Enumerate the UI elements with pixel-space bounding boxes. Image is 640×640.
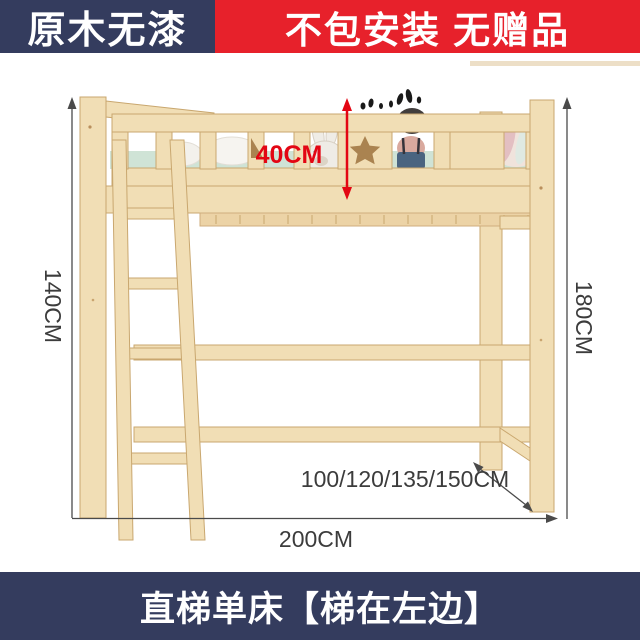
ladder-rung <box>126 453 194 464</box>
guardrail-panel <box>450 131 504 169</box>
guardrail-slat <box>434 131 450 169</box>
wood-knot <box>92 299 95 302</box>
arrow-right-icon <box>546 514 558 523</box>
guardrail-slat <box>200 131 216 169</box>
bed-left-post <box>80 97 106 518</box>
wood-knot <box>88 125 91 128</box>
ladder-rung <box>124 348 188 359</box>
arrow-up-icon <box>68 97 77 109</box>
dim-label-guardrail-height: 40CM <box>256 141 323 169</box>
product-image: 140CM 180CM 200CM 100/120/135/150CM 40 <box>0 53 640 572</box>
top-banner-right-label: 不包安装 无赠品 <box>215 0 640 53</box>
dim-label-right-height: 180CM <box>571 281 597 355</box>
dim-label-left-height: 140CM <box>40 269 66 343</box>
red-arrow-up-icon <box>342 98 352 111</box>
arrow-up-icon <box>563 97 572 109</box>
dim-label-width-options: 100/120/135/150CM <box>301 466 509 492</box>
top-banner: 原木无漆 不包安装 无赠品 <box>0 0 640 53</box>
guardrail-slat <box>156 131 172 169</box>
wood-knot <box>539 186 542 189</box>
ladder-rung <box>122 208 178 219</box>
ladder-rung <box>123 278 183 289</box>
script-decal-marks <box>361 89 422 110</box>
wall-trim <box>470 61 640 66</box>
dim-label-length: 200CM <box>279 526 353 552</box>
right-frame-brace <box>500 216 532 229</box>
top-banner-left-label: 原木无漆 <box>0 0 215 53</box>
bed-slat-strip <box>200 213 546 226</box>
product-card: 原木无漆 不包安装 无赠品 <box>0 0 640 640</box>
bottom-banner-label: 直梯单床【梯在左边】 <box>140 581 500 632</box>
wood-knot <box>540 339 543 342</box>
bed-front-right-post <box>530 100 554 512</box>
bottom-banner: 直梯单床【梯在左边】 <box>0 572 640 640</box>
guardrail-top-rail <box>112 114 545 132</box>
